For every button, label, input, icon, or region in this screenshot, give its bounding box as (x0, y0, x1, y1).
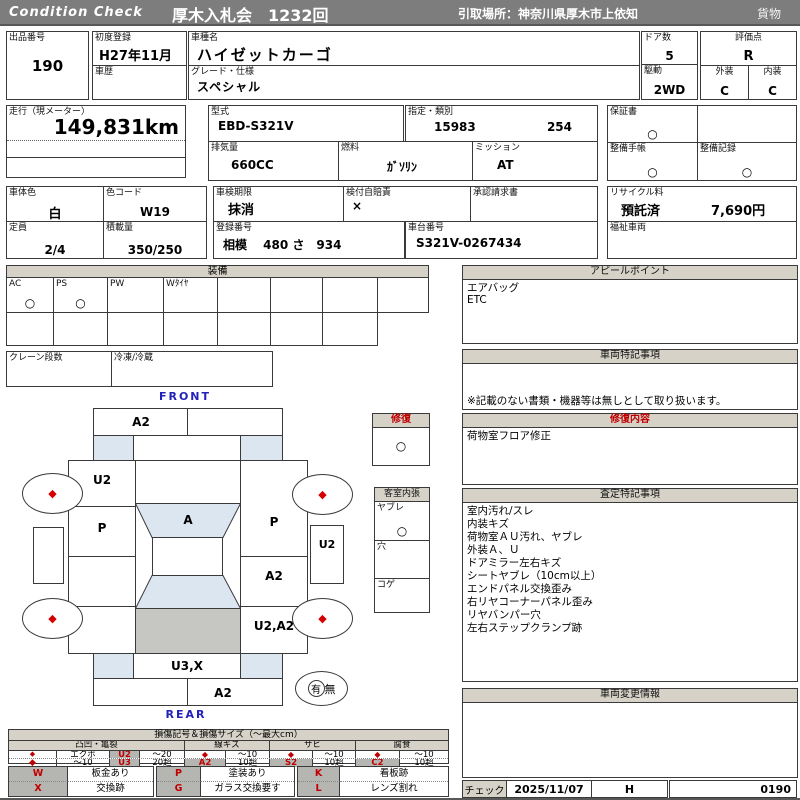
vehicle-category: 貨物 (757, 5, 781, 22)
repair-history-mark: ○ (373, 428, 429, 464)
insurance-cell: 検付自賠責 × (343, 186, 471, 222)
appeal-line: ETC (467, 294, 793, 306)
registration-number-cell: 登録番号 相模 480 さ 934 (213, 221, 405, 259)
assessment-line: 室内汚れ/スレ (467, 505, 793, 518)
refrigeration-label: 冷凍/冷蔵 (114, 353, 153, 363)
model-name-label: 車種名 (191, 33, 218, 43)
equipment-cell-ps: PS ○ (53, 277, 108, 313)
equipment-row2-cell (107, 312, 164, 346)
mileage-cell: 走行（現メーター） 149,831km (6, 105, 186, 178)
legend-code-g: G (157, 782, 201, 796)
equipment-row2-cell (6, 312, 54, 346)
legend-code-x: X (9, 782, 68, 796)
check-number-cell: 0190 (669, 780, 797, 798)
diamond-small-icon: ◆ (9, 751, 57, 758)
windshield-mark: A (135, 513, 241, 527)
cabin-tear-label: ヤブレ (377, 503, 404, 513)
legend-title: 損傷記号＆損傷サイズ（～最大cm） (154, 730, 302, 740)
assessment-notes-section: 査定特記事項 室内汚れ/スレ 内装キズ 荷物室ＡＵ汚れ、ヤブレ 外装Ａ、Ｕ ドア… (462, 488, 798, 682)
cowl-panel (133, 435, 241, 461)
fuel-cell: 燃料 ｶﾞｿﾘﾝ (338, 141, 473, 181)
insurance-label: 検付自賠責 (346, 188, 391, 198)
body-color-label: 車体色 (9, 188, 36, 198)
legend-code-w: W (9, 767, 68, 782)
cabin-lining-box: 客室内張 ヤブレ ○ 穴 コゲ (374, 487, 430, 613)
code-table-paint: P 塗装あり G ガラス交換要す (156, 766, 295, 797)
capacity-cell: 定員 2/4 (6, 221, 104, 259)
damage-diamond-icon: ◆ (318, 489, 326, 500)
wheel-front-right: ◆ (292, 474, 353, 515)
right-step-mark: U2 (311, 538, 343, 551)
damage-diamond-icon: ◆ (318, 613, 326, 624)
legend-code-l: L (298, 782, 340, 796)
equipment-row2-cell (53, 312, 108, 346)
assessment-line: 外装Ａ、Ｕ (467, 544, 793, 557)
assessment-line: シートヤブレ（10cm以上） (467, 570, 793, 583)
transmission-label: ミッション (475, 143, 520, 153)
insurance-mark: × (352, 199, 470, 213)
score-label: 評価点 (701, 33, 796, 43)
repair-content-line: 荷物室フロア修正 (467, 430, 793, 442)
pickup-location: 引取場所：神奈川県厚木市上依知 (458, 5, 638, 22)
chassis-number-label: 車台番号 (408, 223, 444, 233)
equipment-label-wtire: Wﾀｲﾔ (166, 279, 188, 289)
equipment-cell-pw: PW (107, 277, 164, 313)
check-number-value: 0190 (670, 781, 796, 796)
left-door-cell: P (68, 506, 136, 557)
rear-right-pillar (240, 653, 283, 679)
cabin-row-hole: 穴 (375, 541, 429, 579)
inspection-value: 抹消 (228, 199, 343, 218)
equipment-cell-empty1 (217, 277, 271, 313)
registration-number-value: 相模 480 さ 934 (223, 236, 404, 253)
color-code-cell: 色コード W19 (103, 186, 207, 222)
rear-label: REAR (146, 708, 226, 721)
damage-diamond-icon: ◆ (48, 613, 56, 624)
history-cell: 車歴 (92, 65, 187, 100)
mileage-value: 149,831km (7, 115, 179, 139)
right-slide-door-mark: A2 (241, 569, 307, 583)
drive-label: 駆動 (644, 66, 662, 76)
body-color-cell: 車体色 白 (6, 186, 104, 222)
registration-number-label: 登録番号 (216, 223, 252, 233)
equipment-label-pw: PW (110, 279, 124, 289)
model-code-label: 型式 (211, 107, 229, 117)
legend-desc-l: レンズ割れ (340, 782, 448, 796)
front-label: FRONT (145, 390, 225, 403)
first-registration-label: 初度登録 (95, 33, 131, 43)
code-table-sheetmetal: W 板金あり X 交換跡 (8, 766, 154, 797)
assessment-notes-title: 査定特記事項 (463, 489, 797, 503)
change-info-title: 車両変更情報 (463, 689, 797, 703)
legend-desc-x: 交換跡 (68, 782, 153, 796)
cabin-lining-title: 客室内張 (375, 488, 429, 502)
legend-code-u2: U2 (110, 751, 140, 758)
type-class-label: 指定・類別 (408, 107, 453, 117)
inspection-cell: 車検期限 抹消 (213, 186, 344, 222)
repair-content-section: 修復内容 荷物室フロア修正 (462, 413, 798, 485)
change-info-section: 車両変更情報 (462, 688, 798, 778)
right-step-cell: U2 (310, 525, 344, 584)
appeal-points-title: アピールポイント (463, 266, 797, 280)
fuel-label: 燃料 (341, 143, 359, 153)
load-capacity-label: 積載量 (106, 223, 133, 233)
displacement-value: 660CC (231, 158, 338, 172)
displacement-cell: 排気量 660CC (208, 141, 339, 181)
right-slide-door-cell: A2 (240, 556, 308, 607)
vehicle-notes-title: 車両特記事項 (463, 350, 797, 364)
color-code-label: 色コード (106, 188, 142, 198)
diamond-icon: ◆ (356, 751, 400, 758)
type-class-cell: 指定・類別 15983 254 (405, 105, 598, 142)
assessment-line: 左右ステップクランプ跡 (467, 622, 793, 635)
maintenance-book-label: 整備手帳 (610, 144, 646, 154)
transmission-cell: ミッション AT (472, 141, 598, 181)
legend-cell: ～20 (140, 751, 185, 758)
transmission-value: AT (497, 158, 597, 172)
legend-desc-p: 塗装あり (201, 767, 294, 782)
grade-cell: グレード・仕様 スペシャル (188, 65, 640, 100)
fuel-value: ｶﾞｿﾘﾝ (387, 158, 472, 175)
history-label: 車歴 (95, 67, 113, 77)
type-no2-value: 254 (547, 120, 572, 134)
recycle-fee-value: 7,690円 (711, 200, 765, 219)
recycle-fee-label: リサイクル料 (610, 188, 664, 198)
legend-title-row: 損傷記号＆損傷サイズ（～最大cm） (9, 730, 448, 741)
legend-cell: ～10 (313, 751, 356, 758)
left-door-mark: P (69, 521, 135, 535)
chassis-number-cell: 車台番号 S321V-0267434 (405, 221, 598, 259)
front-bumper-cell: A2 (93, 408, 283, 436)
equipment-label-ac: AC (9, 279, 21, 289)
code-table-sign: K 看板跡 L レンズ割れ (297, 766, 449, 797)
legend-code-p: P (157, 767, 201, 782)
assessment-line: 内装キズ (467, 518, 793, 531)
check-label: チェック (465, 782, 505, 797)
legend-group-rust: サビ (270, 741, 356, 750)
front-left-pillar (93, 435, 134, 461)
approval-request-cell: 承認請求書 (470, 186, 598, 222)
legend-data-row-1: ◆ エクボ U2 ～20 ◆ ～10 ◆ ～10 ◆ ～10 (9, 751, 448, 759)
appeal-line: エアバッグ (467, 282, 793, 294)
legend-desc-g: ガラス交換要す (201, 782, 294, 796)
diamond-icon: ◆ (270, 751, 313, 758)
left-slide-door-cell (68, 556, 136, 607)
warranty-extra-cell (697, 105, 797, 143)
cabin-row-tear: ヤブレ ○ (375, 502, 429, 541)
repair-history-title: 修復 (373, 414, 429, 428)
equipment-row2-cell (270, 312, 323, 346)
lot-number-label: 出品番号 (9, 33, 45, 43)
grade-value: スペシャル (197, 78, 639, 95)
interior-grade-label: 内装 (749, 67, 796, 77)
spare-tire-indicator: 有無 (295, 671, 348, 706)
rear-panel-mark: U3,X (134, 659, 240, 673)
drive-cell: 駆動 2WD (641, 64, 698, 100)
load-capacity-cell: 積載量 350/250 (103, 221, 207, 259)
equipment-cell-ac: AC ○ (6, 277, 54, 313)
maintenance-record-cell: 整備記録 ○ (697, 142, 797, 181)
equipment-row2-cell (322, 312, 378, 346)
header-bar: Condition Check 厚木入札会 1232回 引取場所：神奈川県厚木市… (0, 0, 800, 26)
cabin-burn-label: コゲ (377, 580, 395, 590)
model-code-cell: 型式 EBD-S321V (208, 105, 404, 142)
condition-check-sheet: Condition Check 厚木入札会 1232回 引取場所：神奈川県厚木市… (0, 0, 800, 800)
model-code-value: EBD-S321V (218, 119, 403, 133)
rear-left-pillar (93, 653, 134, 679)
check-inspector-cell: H (591, 780, 668, 798)
spare-tire-none: 無 (325, 681, 336, 697)
appeal-points-section: アピールポイント エアバッグ ETC (462, 265, 798, 344)
vehicle-notes-section: 車両特記事項 ※記載のない書類・機器等は無しとして取り扱います。 (462, 349, 798, 410)
auction-title: 厚木入札会 1232回 (172, 2, 329, 26)
legend-cell: ～10 (400, 751, 448, 758)
front-bumper-divider (187, 409, 188, 435)
legend-group-scratch: 線キズ (185, 741, 270, 750)
legend-group-row: 凸凹・亀裂 線キズ サビ 腐食 (9, 741, 448, 751)
front-right-pillar (240, 435, 283, 461)
legend-group-dent: 凸凹・亀裂 (9, 741, 185, 750)
repair-content-title: 修復内容 (463, 414, 797, 428)
capacity-label: 定員 (9, 223, 27, 233)
doors-cell: ドア数 5 (641, 31, 698, 65)
spare-tire-has: 有 (308, 680, 325, 697)
center-body-graphic (135, 460, 241, 654)
legend-desc-w: 板金あり (68, 767, 153, 782)
rear-panel-cell: U3,X (133, 653, 241, 679)
displacement-label: 排気量 (211, 143, 238, 153)
right-door-cell: P (240, 460, 308, 557)
damage-diamond-icon: ◆ (48, 488, 56, 499)
brand-logo: Condition Check (9, 5, 143, 20)
damage-legend-table: 損傷記号＆損傷サイズ（～最大cm） 凸凹・亀裂 線キズ サビ 腐食 ◆ エクボ … (8, 729, 449, 764)
legend-group-corrosion: 腐食 (356, 741, 448, 750)
assessment-line: エンドパネル交換歪み (467, 583, 793, 596)
assessment-line: ドアミラー左右キズ (467, 557, 793, 570)
rear-bumper-cell: A2 (93, 678, 283, 706)
crane-label: クレーン段数 (9, 353, 63, 363)
exterior-grade-cell: 外装 C (700, 65, 749, 100)
refrigeration-cell: 冷凍/冷蔵 (111, 351, 273, 387)
inspection-label: 車検期限 (216, 188, 252, 198)
right-door-mark: P (241, 515, 307, 529)
welfare-vehicle-label: 福祉車両 (610, 223, 646, 233)
maintenance-book-cell: 整備手帳 ○ (607, 142, 698, 181)
first-registration-value: H27年11月 (99, 45, 186, 64)
warranty-cell: 保証書 ○ (607, 105, 698, 143)
assessment-line: リヤバンパー穴 (467, 609, 793, 622)
model-name-value: ハイゼットカーゴ (197, 44, 639, 65)
equipment-row2-cell (217, 312, 271, 346)
chassis-number-value: S321V-0267434 (416, 236, 597, 250)
type-no1-value: 15983 (434, 120, 476, 134)
wheel-rear-left: ◆ (22, 598, 83, 639)
legend-desc-k: 看板跡 (340, 767, 448, 782)
assessment-line: 右リヤコーナーパネル歪み (467, 596, 793, 609)
approval-request-label: 承認請求書 (473, 188, 518, 198)
cabin-hole-label: 穴 (377, 542, 386, 552)
legend-cell: エクボ (57, 751, 110, 758)
equipment-cell-empty2 (270, 277, 323, 313)
first-registration-cell: 初度登録 H27年11月 (92, 31, 187, 66)
crane-cell: クレーン段数 (6, 351, 112, 387)
interior-grade-cell: 内装 C (748, 65, 797, 100)
welfare-vehicle-cell: 福祉車両 (607, 221, 797, 259)
doors-label: ドア数 (644, 33, 671, 43)
recycle-fee-cell: リサイクル料 預託済 7,690円 (607, 186, 797, 222)
legend-code-k: K (298, 767, 340, 782)
check-label-cell: チェック (462, 780, 507, 798)
model-name-cell: 車種名 ハイゼットカーゴ (188, 31, 640, 66)
assessment-line: 荷物室ＡＵ汚れ、ヤブレ (467, 531, 793, 544)
warranty-label: 保証書 (610, 107, 637, 117)
maintenance-record-label: 整備記録 (700, 144, 736, 154)
equipment-cell-wtire: Wﾀｲﾔ (163, 277, 218, 313)
diamond-icon: ◆ (185, 751, 226, 758)
lot-number-cell: 出品番号 190 (6, 31, 89, 100)
equipment-title: 装備 (208, 266, 228, 277)
wheel-front-left: ◆ (22, 473, 83, 514)
score-cell: 評価点 R (700, 31, 797, 66)
exterior-grade-label: 外装 (701, 67, 748, 77)
equipment-cell-empty4 (377, 277, 429, 313)
grade-label: グレード・仕様 (191, 67, 254, 77)
check-date-cell: 2025/11/07 (506, 780, 592, 798)
rear-bumper-mark: A2 (188, 686, 258, 700)
equipment-cell-empty3 (322, 277, 378, 313)
repair-history-box: 修復 ○ (372, 413, 430, 466)
wheel-rear-right: ◆ (292, 598, 353, 639)
equipment-label-ps: PS (56, 279, 67, 289)
left-step-cell (33, 527, 64, 584)
recycle-status-value: 預託済 (621, 200, 660, 219)
legend-cell: ～10 (226, 751, 270, 758)
mileage-extra-row (7, 141, 185, 158)
cabin-row-burn: コゲ (375, 579, 429, 615)
vehicle-notes-disclaimer: ※記載のない書類・機器等は無しとして取り扱います。 (467, 395, 726, 407)
front-bumper-mark: A2 (106, 415, 176, 429)
equipment-row2-cell (163, 312, 218, 346)
